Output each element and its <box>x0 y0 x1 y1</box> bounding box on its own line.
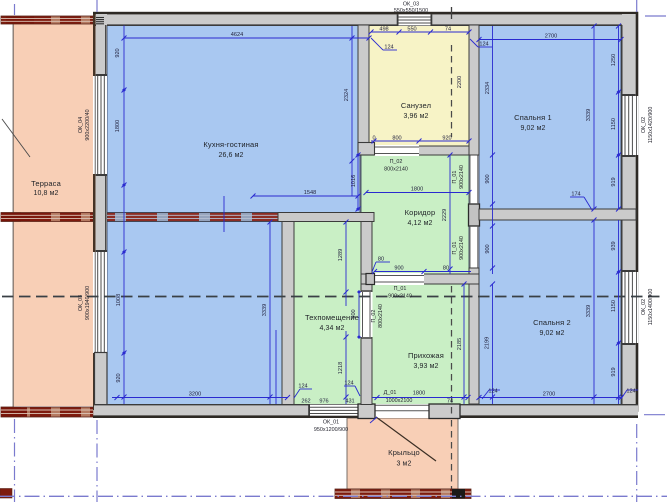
svg-text:919: 919 <box>611 177 617 186</box>
svg-text:80: 80 <box>443 266 449 272</box>
svg-text:4,34 м2: 4,34 м2 <box>320 325 345 332</box>
svg-text:800: 800 <box>351 309 357 318</box>
svg-text:Санузел: Санузел <box>401 101 431 110</box>
svg-text:1548: 1548 <box>304 190 316 196</box>
svg-text:П_01: П_01 <box>452 242 458 255</box>
svg-text:900х2140: 900х2140 <box>459 236 465 260</box>
svg-text:262: 262 <box>301 399 310 405</box>
svg-text:2334: 2334 <box>485 82 491 94</box>
svg-text:0: 0 <box>372 136 375 142</box>
svg-text:800х2140: 800х2140 <box>378 304 384 328</box>
svg-text:124: 124 <box>384 45 393 51</box>
svg-text:498: 498 <box>379 27 388 33</box>
svg-text:1016: 1016 <box>351 175 357 187</box>
svg-text:800: 800 <box>392 136 401 142</box>
svg-text:1150х1420/900: 1150х1420/900 <box>648 107 654 144</box>
svg-text:9,02 м2: 9,02 м2 <box>521 125 546 132</box>
svg-text:74: 74 <box>447 399 453 405</box>
svg-text:2200: 2200 <box>457 76 463 88</box>
svg-text:2700: 2700 <box>545 34 557 40</box>
svg-text:3 м2: 3 м2 <box>397 461 412 468</box>
svg-text:1800: 1800 <box>413 391 425 397</box>
svg-text:124: 124 <box>626 389 635 395</box>
svg-text:3,93 м2: 3,93 м2 <box>414 363 439 370</box>
svg-text:550х550/1500: 550х550/1500 <box>394 8 428 14</box>
svg-text:900х2140: 900х2140 <box>459 165 465 189</box>
svg-text:ОК_03: ОК_03 <box>403 2 419 8</box>
svg-text:900: 900 <box>485 174 491 183</box>
svg-text:74: 74 <box>445 27 451 33</box>
svg-text:4624: 4624 <box>231 32 243 38</box>
svg-text:1150: 1150 <box>611 300 617 312</box>
svg-text:ОК_01: ОК_01 <box>323 420 339 426</box>
svg-text:П_02: П_02 <box>371 310 377 323</box>
svg-text:3339: 3339 <box>262 304 268 316</box>
svg-text:1289: 1289 <box>338 249 344 261</box>
svg-text:900: 900 <box>394 266 403 272</box>
svg-text:976: 976 <box>319 399 328 405</box>
svg-text:1008: 1008 <box>116 294 122 306</box>
svg-text:919: 919 <box>611 367 617 376</box>
svg-text:124: 124 <box>298 384 307 390</box>
svg-text:920: 920 <box>442 136 451 142</box>
svg-text:3200: 3200 <box>189 392 201 398</box>
svg-text:950х1200/900: 950х1200/900 <box>314 427 348 433</box>
svg-text:2700: 2700 <box>543 392 555 398</box>
svg-text:124: 124 <box>488 389 497 395</box>
svg-text:939: 939 <box>611 241 617 250</box>
svg-text:4,12 м2: 4,12 м2 <box>408 220 433 227</box>
svg-text:ОК_02: ОК_02 <box>641 299 647 315</box>
svg-text:1800: 1800 <box>115 120 121 132</box>
svg-text:П_02: П_02 <box>390 159 403 165</box>
svg-text:2199: 2199 <box>485 337 491 349</box>
svg-text:Кухня-гостиная: Кухня-гостиная <box>203 140 258 149</box>
svg-text:431: 431 <box>345 399 354 405</box>
svg-text:900: 900 <box>485 244 491 253</box>
svg-text:1150: 1150 <box>611 118 617 130</box>
svg-text:Крыльцо: Крыльцо <box>388 448 420 457</box>
svg-text:Спальня 2: Спальня 2 <box>533 318 571 327</box>
svg-text:1250: 1250 <box>611 54 617 66</box>
svg-text:124: 124 <box>479 42 488 48</box>
svg-text:10,8 м2: 10,8 м2 <box>34 190 59 197</box>
svg-text:3,96 м2: 3,96 м2 <box>404 113 429 120</box>
svg-text:П_01: П_01 <box>394 286 407 292</box>
svg-text:ОК_04: ОК_04 <box>78 117 84 133</box>
svg-text:920: 920 <box>115 48 121 57</box>
svg-text:920: 920 <box>116 373 122 382</box>
svg-text:2324: 2324 <box>344 89 350 101</box>
svg-text:124: 124 <box>344 381 353 387</box>
svg-text:Д_01: Д_01 <box>384 390 397 396</box>
svg-text:Прихожая: Прихожая <box>408 351 444 360</box>
svg-text:80: 80 <box>378 257 384 263</box>
svg-text:ОК_02: ОК_02 <box>641 117 647 133</box>
svg-text:ОК_03: ОК_03 <box>78 295 84 311</box>
svg-text:2229: 2229 <box>442 209 448 221</box>
svg-text:3339: 3339 <box>586 305 592 317</box>
svg-text:Спальня 1: Спальня 1 <box>514 113 552 122</box>
svg-text:9,02 м2: 9,02 м2 <box>540 330 565 337</box>
svg-text:П_01: П_01 <box>452 171 458 184</box>
svg-text:900х2140: 900х2140 <box>388 294 412 300</box>
svg-text:1800: 1800 <box>411 187 423 193</box>
svg-text:174: 174 <box>571 192 580 198</box>
svg-text:900х1940/900: 900х1940/900 <box>85 286 91 320</box>
svg-text:1000х2100: 1000х2100 <box>386 398 413 404</box>
svg-text:1218: 1218 <box>338 362 344 374</box>
svg-text:26,6 м2: 26,6 м2 <box>219 152 244 159</box>
svg-text:1150х1400/900: 1150х1400/900 <box>648 289 654 326</box>
svg-text:900х2200/40: 900х2200/40 <box>85 109 91 140</box>
svg-text:Терраса: Терраса <box>31 179 61 188</box>
svg-text:3339: 3339 <box>586 109 592 121</box>
svg-text:800х2140: 800х2140 <box>384 167 408 173</box>
svg-text:550: 550 <box>407 27 416 33</box>
svg-text:2185: 2185 <box>457 338 463 350</box>
svg-text:Коридор: Коридор <box>405 208 436 217</box>
